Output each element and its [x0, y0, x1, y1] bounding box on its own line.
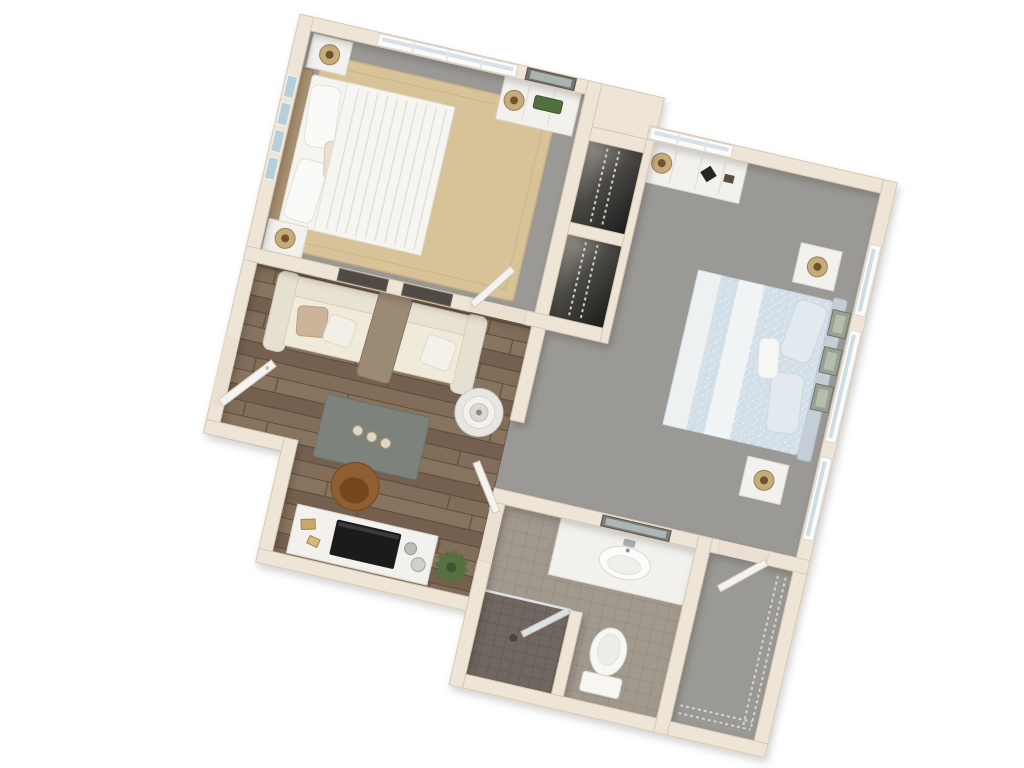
floor-plan-stage — [0, 0, 1024, 768]
floor-plan-render — [0, 0, 1024, 768]
bed2-pillow — [765, 371, 804, 434]
throw-pillow-tan — [296, 305, 329, 338]
gold-decor — [301, 519, 315, 529]
apartment-unit — [161, 14, 905, 758]
bed2-lumbar-pillow — [758, 338, 780, 379]
